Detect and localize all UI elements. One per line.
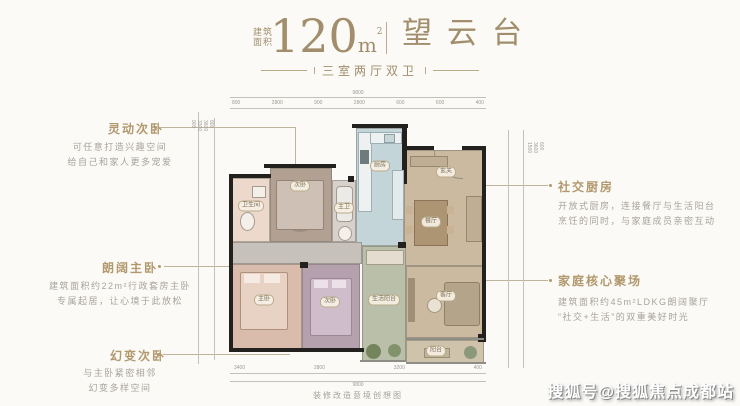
balcony-glass-wall [406, 338, 484, 340]
area-number: 120 [270, 9, 358, 63]
leader-dot [157, 353, 160, 356]
chair-icon [447, 226, 454, 234]
header-divider [386, 22, 387, 54]
pillow-icon [314, 280, 328, 288]
room-label-living: 客厅 [436, 291, 456, 302]
balcony-outer-rail [360, 360, 406, 362]
plant-icon [388, 344, 401, 357]
annotation-desc-line: 烹饪的同时，与家庭成员亲密互动 [558, 214, 728, 229]
wall-segment [229, 348, 364, 352]
chair-icon [447, 206, 454, 214]
wall-segment [482, 146, 486, 340]
dim-label: 900 [314, 100, 322, 106]
annotation-desc-kitchen: 开放式厨房，连接餐厅与生活阳台 烹饪的同时，与家庭成员亲密互动 [558, 199, 728, 229]
dim-label: 600 [396, 100, 404, 106]
dim-label: 3200 [394, 365, 405, 371]
dim-label: 800 [232, 100, 240, 106]
dim-line [230, 373, 486, 374]
dim-label: 600 [436, 100, 444, 106]
annotation-desc-line: 给自己和家人更多宠爱 [58, 155, 182, 170]
wall-pier [348, 176, 354, 182]
leader-dot [154, 126, 157, 129]
balcony-outer-rail [406, 362, 486, 364]
project-name: 望云台 [402, 16, 537, 52]
floorplan-poster: 建筑 面积 120m2 望云台 三室两厅双卫 灵动次卧 可任意打造兴趣空间 给自… [0, 0, 740, 406]
sofa [444, 282, 480, 326]
leader-dot [549, 279, 552, 282]
wall-segment [229, 174, 271, 178]
area-value: 120m2 [270, 8, 383, 69]
room-label-bedroom-top: 次卧 [290, 181, 310, 192]
wall-pier [398, 242, 406, 248]
room-label-balcony: 阳台 [426, 346, 446, 357]
subtitle-line-left [261, 70, 307, 71]
dim-label: 2800 [272, 100, 283, 106]
leader-dot [549, 184, 552, 187]
plant-icon [464, 346, 477, 359]
area-unit: m2 [358, 33, 383, 57]
dim-label: 400 [476, 100, 484, 106]
leader-line [160, 127, 295, 128]
annotation-desc-line: “社交+生活”的双重美好时光 [558, 310, 728, 325]
annotation-desc-line: 建筑面积约22m²行政套房主卧 [28, 279, 212, 294]
annotation-desc-living-core: 建筑面积约45m²LDKG朗阔聚厅 “社交+生活”的双重美好时光 [558, 295, 728, 325]
wall-segment [264, 164, 336, 168]
room-label-master: 主卧 [254, 295, 274, 306]
chair-icon [406, 226, 413, 234]
tv-unit [408, 278, 415, 322]
annotation-desc-line: 与主卧紧密相邻 [58, 366, 182, 381]
annotation-desc-master-bedroom: 建筑面积约22m²行政套房主卧 专属起居，让心境于此放松 [28, 279, 212, 309]
dim-label: 3400 [234, 365, 245, 371]
sink-icon [252, 186, 266, 198]
dim-label: 600 [538, 142, 544, 342]
pillow-icon [244, 274, 260, 283]
kitchen-counter [358, 132, 372, 212]
kitchen-counter [392, 170, 404, 220]
sideboard-cabinet [466, 196, 482, 242]
stove-icon [360, 150, 369, 164]
room-hallway [232, 242, 362, 264]
pillow-icon [264, 274, 280, 283]
dim-line [230, 97, 486, 98]
leader-dot [158, 265, 161, 268]
subtitle-tick-left [314, 67, 315, 74]
room-label-entry: 玄关 [436, 167, 456, 178]
dim-line [523, 130, 524, 368]
room-label-bathroom: 卫生间 [238, 201, 264, 212]
chair-icon [406, 206, 413, 214]
dim-overall-top: 9800 [230, 90, 486, 96]
dim-row-top: 800 2800 900 2800 600 600 400 [232, 100, 484, 106]
annotation-desc-line: 开放式厨房，连接餐厅与生活阳台 [558, 199, 728, 214]
room-label-bedroom-magic: 次卧 [320, 297, 340, 308]
watermark-sohu: 搜狐号@搜狐焦点成都站 [547, 378, 734, 402]
annotation-desc-line: 可任意打造兴趣空间 [58, 140, 182, 155]
annotation-desc-line: 专属起居，让心境于此放松 [28, 294, 212, 309]
dim-label: 2800 [314, 365, 325, 371]
leader-line [163, 354, 290, 355]
annotation-desc-bedroom-flex: 可任意打造兴趣空间 给自己和家人更多宠爱 [58, 140, 182, 170]
toilet-icon [338, 226, 352, 241]
subtitle: 三室两厅双卫 [322, 62, 418, 79]
plant-icon [366, 344, 381, 359]
annotation-title-living-core: 家庭核心聚场 [558, 272, 642, 289]
dim-col-right: 600 3600 1500 [526, 142, 544, 342]
annotation-desc-line: 建筑面积约45m²LDKG朗阔聚厅 [558, 295, 728, 310]
wall-segment [352, 124, 408, 128]
room-label-service-balcony: 生活阳台 [368, 295, 400, 306]
desk [366, 250, 404, 265]
subtitle-row: 三室两厅双卫 [0, 62, 740, 79]
dim-label: 900 [190, 120, 196, 356]
room-label-bathroom-master: 主卫 [334, 203, 354, 214]
plan-caption: 装修改造意境创想图 [230, 390, 486, 401]
entry-cabinet [410, 156, 448, 167]
annotation-title-kitchen: 社交厨房 [558, 178, 614, 195]
area-unit-sup: 2 [377, 27, 383, 37]
dim-line [508, 130, 509, 368]
wall-pier [300, 262, 308, 268]
annotation-desc-bedroom-magic: 与主卧紧密相邻 幻变多样空间 [58, 366, 182, 396]
dim-row-bottom: 3400 2800 3200 400 [234, 365, 482, 371]
wall-segment [406, 146, 434, 150]
pillow-icon [332, 280, 346, 288]
subtitle-tick-right [425, 67, 426, 74]
annotation-title-master-bedroom: 朗阔主卧 [102, 259, 158, 276]
toilet-icon [240, 212, 255, 231]
subtitle-line-right [433, 70, 479, 71]
wall-segment [229, 174, 233, 352]
dim-col-left: 800 3600 3300 900 [190, 120, 214, 356]
dim-line [230, 108, 486, 109]
dim-label: 3600 [202, 120, 208, 356]
dim-line [214, 118, 215, 360]
dim-label: 3300 [196, 120, 202, 356]
dim-label: 3600 [532, 142, 538, 342]
sink-icon [384, 134, 395, 143]
dim-label: 1500 [526, 142, 532, 342]
room-label-dining: 餐厅 [421, 217, 441, 228]
dim-label: 2800 [354, 100, 365, 106]
annotation-desc-line: 幻变多样空间 [58, 381, 182, 396]
dim-overall-bottom: 9800 [230, 382, 486, 388]
dim-label: 400 [474, 365, 482, 371]
room-label-kitchen: 厨房 [370, 161, 390, 172]
